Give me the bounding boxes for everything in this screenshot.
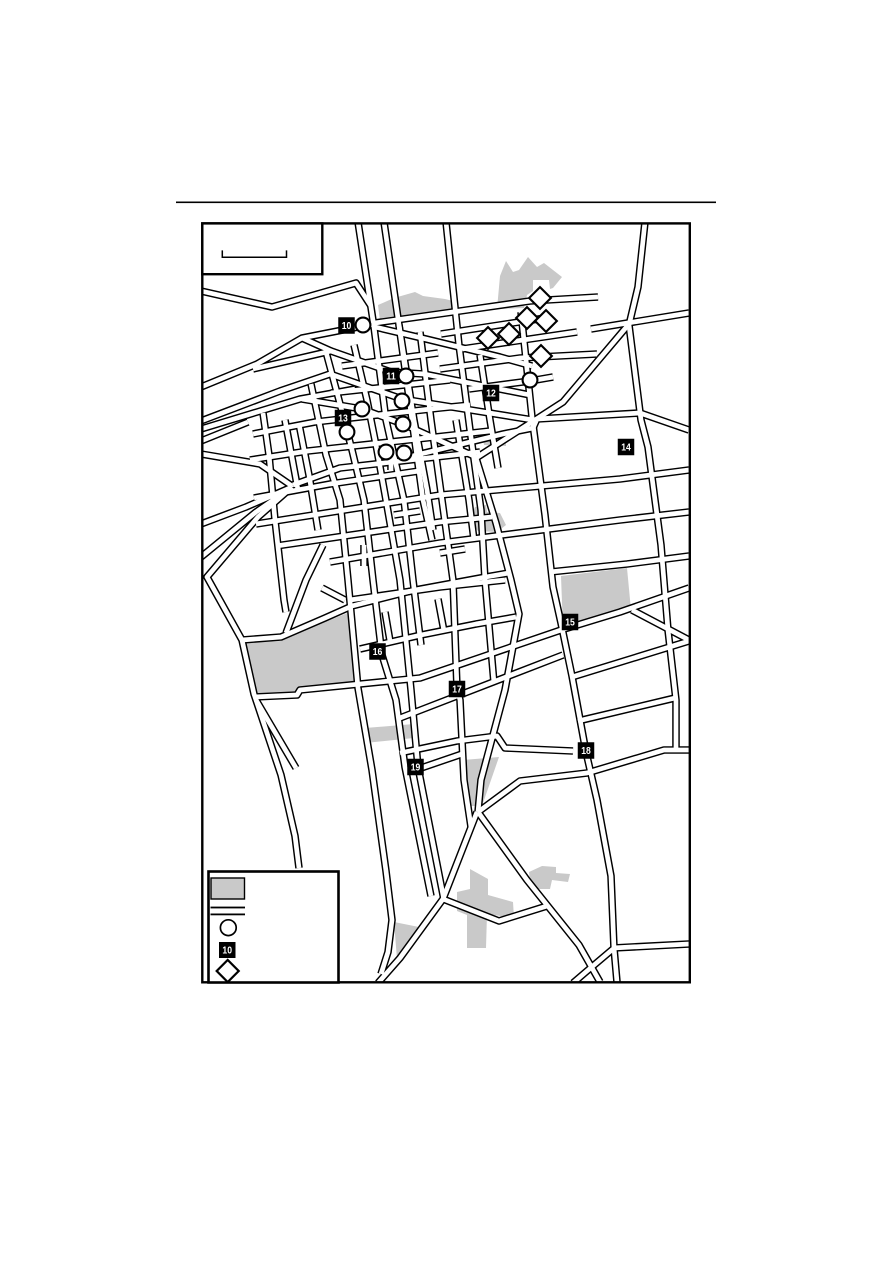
svg-text:14: 14 [621,443,631,454]
svg-text:13: 13 [338,414,348,425]
svg-text:12: 12 [486,389,496,400]
svg-text:16: 16 [373,647,383,658]
svg-text:17: 17 [452,685,462,696]
svg-text:19: 19 [411,763,421,774]
svg-text:18: 18 [581,746,591,757]
svg-text:10: 10 [222,946,232,957]
svg-text:15: 15 [565,618,575,629]
svg-text:10: 10 [342,321,352,332]
svg-text:11: 11 [386,372,396,383]
